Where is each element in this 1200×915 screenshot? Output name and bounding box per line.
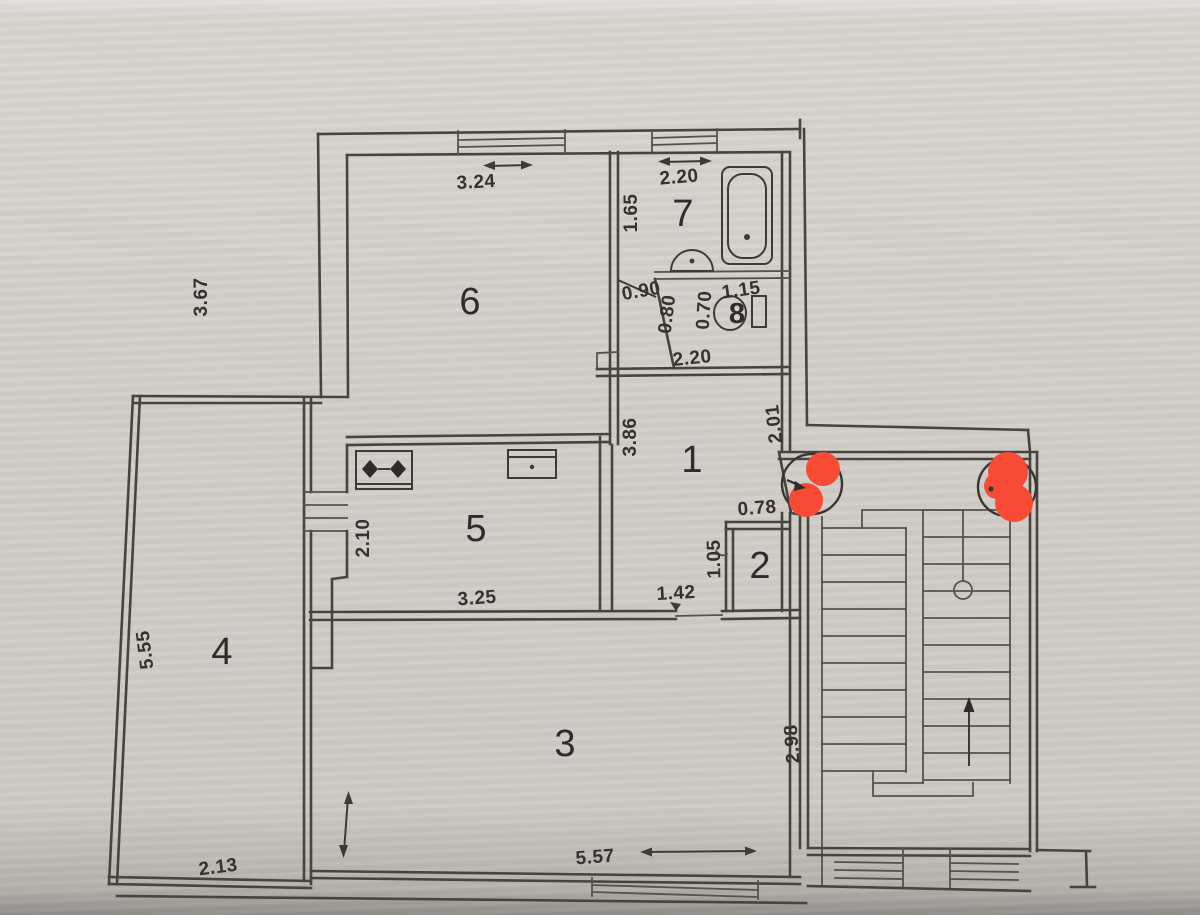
dim-closet-depth: 1.05	[704, 539, 726, 578]
red-marker-left	[782, 452, 842, 517]
dim-wc-right: 0.70	[693, 290, 717, 330]
red-dot	[984, 473, 1010, 499]
room-label-8: 8	[729, 298, 745, 330]
dim-wc-left: 0.80	[655, 294, 681, 335]
floor-plan-svg: 1 2 3 4 5 6 7 8 3.24 3.67 2.20 1.65 0.90…	[0, 0, 1200, 915]
top-windows	[458, 129, 717, 170]
dim-room6-depth: 3.67	[191, 278, 212, 317]
dim-entry-wall: 2.01	[762, 403, 787, 444]
kitchen-sink-icon	[508, 450, 556, 478]
dim-room6-width: 3.24	[456, 171, 496, 194]
room-label-4: 4	[211, 631, 232, 673]
stairwell	[779, 452, 1095, 891]
dim-balcony-depth: 5.55	[133, 629, 159, 670]
dim-living-width: 5.57	[575, 846, 615, 870]
room-label-3: 3	[554, 723, 575, 765]
dim-hall-depth: 3.86	[620, 418, 641, 457]
dim-bath-width: 2.20	[659, 165, 700, 189]
stove-icon	[356, 451, 412, 489]
bathtub-icon	[722, 167, 772, 264]
red-dot	[806, 452, 840, 486]
dim-hall-opening: 1.42	[656, 582, 696, 605]
interior-walls	[310, 152, 808, 877]
dim-bath-depth: 1.65	[621, 194, 642, 233]
room-label-6: 6	[459, 281, 480, 323]
stair-newel-circle	[954, 581, 972, 599]
room-label-5: 5	[465, 508, 486, 550]
dim-kitchen-width: 3.25	[457, 587, 497, 611]
red-dot	[789, 483, 823, 517]
dim-wc-bottom: 2.20	[672, 346, 713, 371]
dim-closet-width: 0.78	[737, 497, 777, 521]
sink-icon	[671, 250, 713, 271]
room-label-2: 2	[749, 545, 770, 587]
room-label-7: 7	[672, 193, 693, 235]
dim-wc-width: 1.15	[720, 277, 762, 303]
red-marker-right	[978, 452, 1036, 522]
dim-balcony-width: 2.13	[198, 855, 239, 881]
room-label-1: 1	[681, 439, 702, 481]
dim-living-depth: 2.98	[781, 724, 805, 764]
dim-bath-door: 0.90	[620, 278, 662, 305]
dim-kitchen-depth: 2.10	[353, 519, 374, 558]
floor-plan-scan: 1 2 3 4 5 6 7 8 3.24 3.67 2.20 1.65 0.90…	[0, 0, 1200, 915]
